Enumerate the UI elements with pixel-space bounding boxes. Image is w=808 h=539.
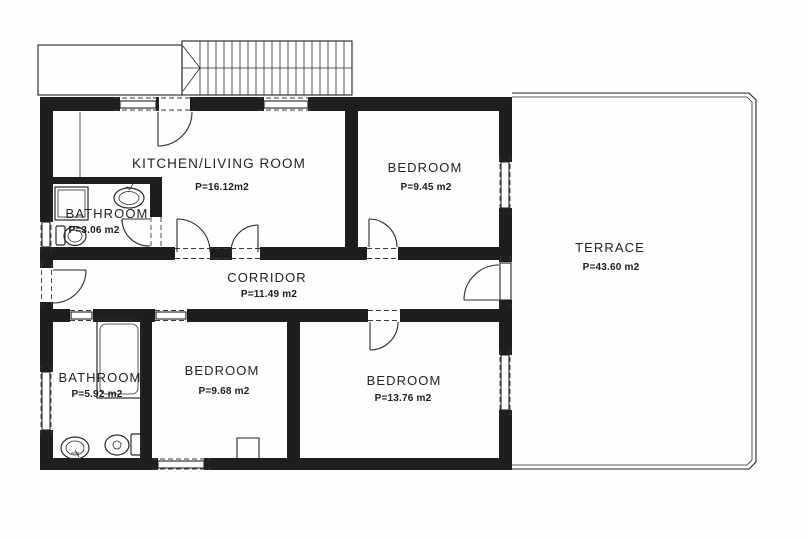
staircase xyxy=(182,41,352,95)
room-area: P=11.49 m2 xyxy=(241,289,297,300)
doorway xyxy=(70,311,93,321)
room-label: KITCHEN/LIVING ROOM xyxy=(132,156,306,171)
room-label: BEDROOM xyxy=(185,363,260,378)
room-area: P=9.68 m2 xyxy=(198,386,249,397)
wall-segment xyxy=(260,247,345,260)
room-bedroom-top: BEDROOM P=9.45 m2 xyxy=(388,160,463,193)
toilet-symbol xyxy=(105,434,141,455)
room-area: P=13.76 m2 xyxy=(375,393,432,404)
wall-segment xyxy=(53,309,70,322)
wall-segment xyxy=(358,247,367,260)
doorway xyxy=(155,311,187,321)
wall-segment xyxy=(345,97,358,260)
wall-segment xyxy=(400,309,499,322)
window xyxy=(41,366,51,436)
wall-segment xyxy=(53,247,175,260)
window xyxy=(152,459,210,469)
room-area: P=3.06 m2 xyxy=(68,225,119,236)
sink-symbol xyxy=(61,437,89,459)
wall-segment xyxy=(204,458,512,470)
room-terrace: TERRACE P=43.60 m2 xyxy=(575,240,645,273)
window xyxy=(41,217,51,252)
room-bedroom-middle: BEDROOM P=9.68 m2 xyxy=(185,363,260,397)
terrace-door xyxy=(464,256,511,306)
room-area: P=43.60 m2 xyxy=(583,262,640,273)
door xyxy=(153,98,195,146)
door xyxy=(122,217,161,247)
wall-segment xyxy=(187,309,368,322)
wall-segment xyxy=(398,247,499,260)
room-label: TERRACE xyxy=(575,240,645,255)
room-area: P=5.92 m2 xyxy=(71,389,122,400)
wall-segment xyxy=(287,322,300,458)
room-label: BATHROOM xyxy=(59,370,142,385)
wall-segment xyxy=(140,322,152,458)
wall-segment xyxy=(308,97,512,111)
wall-segment xyxy=(40,302,53,372)
terrace-outline xyxy=(512,93,756,469)
window xyxy=(500,156,510,214)
wall-segment xyxy=(40,458,158,470)
room-label: BEDROOM xyxy=(388,160,463,175)
window xyxy=(258,98,314,110)
door xyxy=(368,311,400,351)
wall-segment xyxy=(40,97,53,222)
floor-plan-sheet: KITCHEN/LIVING ROOM P=16.12m2 BATHROOM P… xyxy=(0,0,808,539)
room-area: P=16.12m2 xyxy=(195,182,249,193)
wall-segment xyxy=(499,300,512,355)
door xyxy=(367,219,398,259)
wall-segment xyxy=(210,247,232,260)
chimney-notch xyxy=(237,438,259,458)
room-bathroom-top: BATHROOM P=3.06 m2 xyxy=(66,206,149,236)
window xyxy=(500,349,510,416)
wall-segment xyxy=(150,184,162,217)
room-bedroom-bottom-right: BEDROOM P=13.76 m2 xyxy=(367,373,442,404)
floor-plan-drawing: KITCHEN/LIVING ROOM P=16.12m2 BATHROOM P… xyxy=(0,0,808,539)
room-area: P=9.45 m2 xyxy=(400,182,451,193)
bathtub-symbol xyxy=(97,320,141,398)
room-corridor: CORRIDOR P=11.49 m2 xyxy=(227,270,307,300)
wall-segment xyxy=(190,97,264,111)
window xyxy=(114,98,162,110)
room-label: CORRIDOR xyxy=(227,270,307,285)
wall-segment xyxy=(53,177,162,184)
wall-segment xyxy=(499,97,512,162)
room-label: BATHROOM xyxy=(66,206,149,221)
sink-symbol xyxy=(114,184,144,208)
entrance-door xyxy=(42,262,87,308)
room-label: BEDROOM xyxy=(367,373,442,388)
wall-segment xyxy=(499,208,512,262)
entry-landing xyxy=(38,45,182,95)
